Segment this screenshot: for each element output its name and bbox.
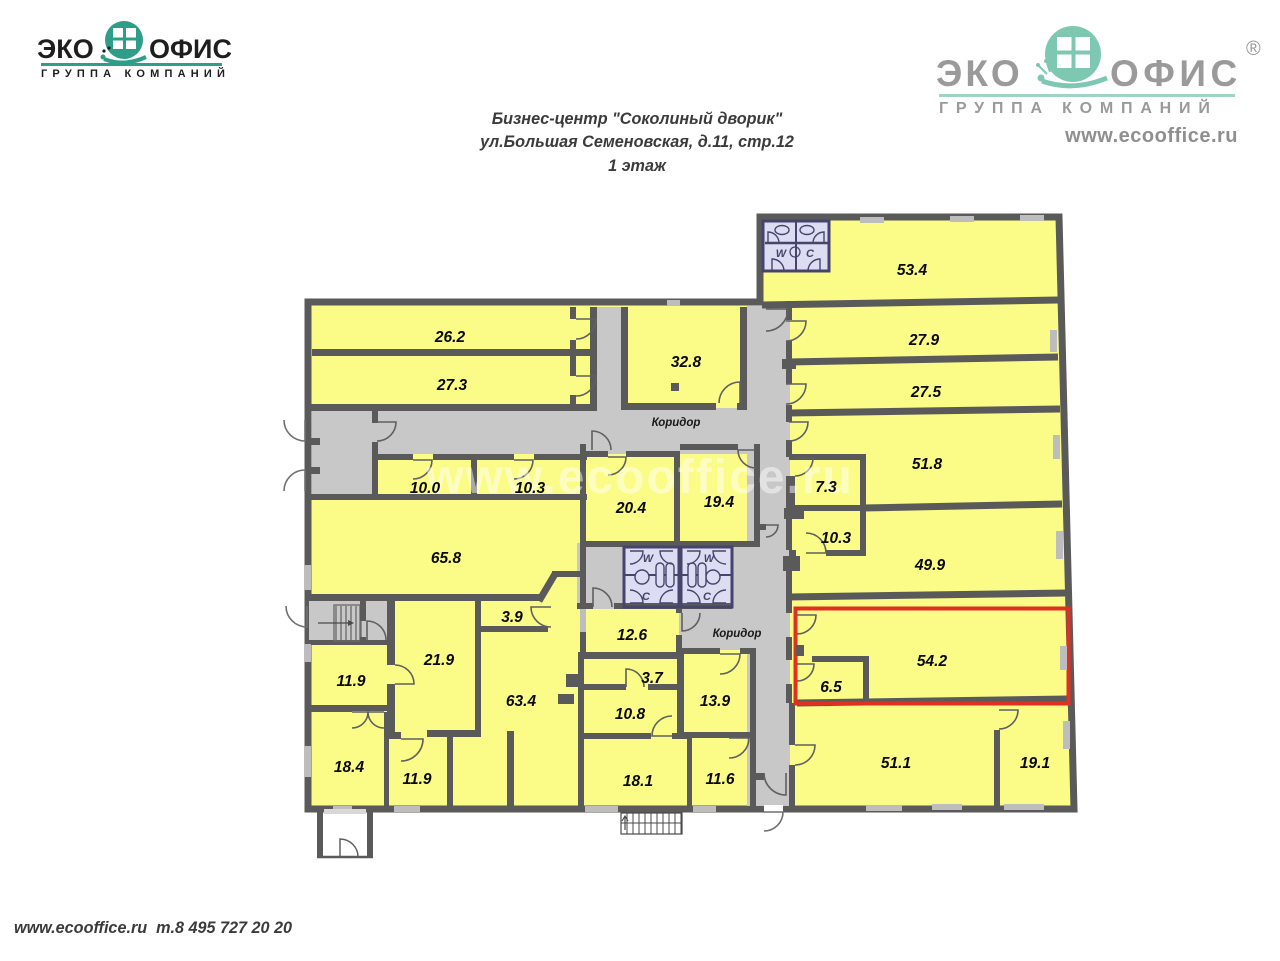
svg-text:Коридор: Коридор	[713, 628, 762, 640]
svg-text:20.4: 20.4	[615, 500, 647, 517]
svg-text:W: W	[704, 553, 716, 565]
svg-text:6.5: 6.5	[820, 679, 842, 696]
svg-text:www.ecooffice.ru: www.ecooffice.ru	[425, 451, 854, 504]
svg-text:32.8: 32.8	[671, 354, 702, 371]
svg-text:10.8: 10.8	[615, 706, 646, 723]
svg-text:10.3: 10.3	[821, 530, 852, 547]
svg-text:7.3: 7.3	[815, 479, 837, 496]
svg-text:10.0: 10.0	[410, 480, 441, 497]
svg-text:49.9: 49.9	[914, 557, 946, 574]
svg-text:3.9: 3.9	[501, 609, 523, 626]
svg-text:63.4: 63.4	[506, 693, 537, 710]
svg-text:C: C	[806, 248, 815, 260]
svg-text:19.1: 19.1	[1020, 755, 1050, 772]
svg-text:27.3: 27.3	[436, 377, 468, 394]
svg-text:18.1: 18.1	[623, 773, 653, 790]
svg-text:Коридор: Коридор	[652, 417, 701, 429]
svg-text:12.6: 12.6	[617, 627, 648, 644]
svg-text:53.4: 53.4	[897, 262, 928, 279]
svg-text:11.9: 11.9	[402, 771, 431, 788]
svg-text:26.2: 26.2	[434, 329, 466, 346]
svg-text:10.3: 10.3	[515, 480, 546, 497]
svg-text:11.6: 11.6	[705, 771, 734, 788]
svg-text:51.1: 51.1	[881, 755, 911, 772]
svg-text:11.9: 11.9	[336, 673, 365, 690]
svg-text:W: W	[776, 248, 788, 260]
svg-text:13.9: 13.9	[700, 693, 731, 710]
svg-text:C: C	[642, 591, 651, 603]
svg-text:54.2: 54.2	[917, 653, 948, 670]
svg-text:21.9: 21.9	[423, 652, 455, 669]
svg-text:27.9: 27.9	[908, 332, 940, 349]
svg-text:3.7: 3.7	[641, 670, 664, 687]
svg-text:W: W	[643, 553, 655, 565]
svg-text:65.8: 65.8	[431, 550, 462, 567]
svg-text:19.4: 19.4	[704, 494, 735, 511]
svg-text:C: C	[703, 591, 712, 603]
svg-text:18.4: 18.4	[334, 759, 365, 776]
svg-text:27.5: 27.5	[910, 384, 942, 401]
svg-text:51.8: 51.8	[912, 456, 943, 473]
